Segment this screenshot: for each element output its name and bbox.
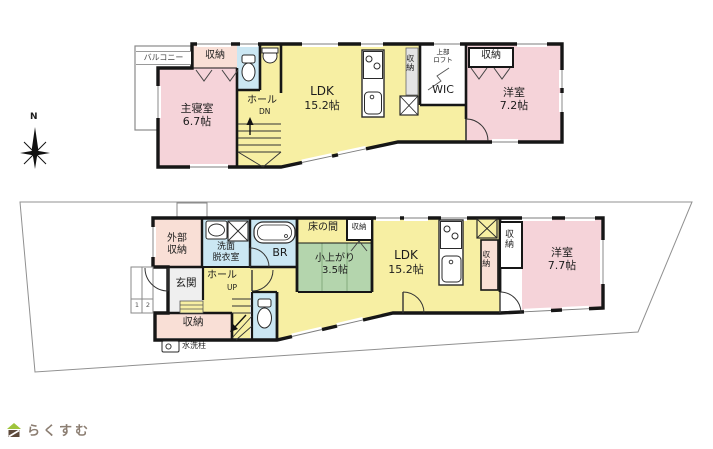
fridge-space-2f xyxy=(400,96,418,115)
western-2f-size: 7.2帖 xyxy=(482,99,546,112)
western-1f-size: 7.7帖 xyxy=(522,259,602,272)
corridor-1f xyxy=(250,267,298,292)
equipment-box xyxy=(177,203,207,217)
toilet-fixture-2f xyxy=(242,55,255,81)
label-hall-2f: ホール xyxy=(240,95,284,107)
label-ldk-1f: LDK 15.2帖 xyxy=(368,248,444,276)
label-balcony: バルコニー xyxy=(136,51,191,65)
western-2f-name: 洋室 xyxy=(482,86,546,99)
toilet-fixture-1f xyxy=(258,299,272,328)
label-kitchen-storage-2f: 収納 xyxy=(405,54,415,72)
label-storage-mid-a: 収納 xyxy=(481,250,491,268)
genkan-step xyxy=(180,301,203,313)
ext-storage-line1: 外部 xyxy=(158,233,196,245)
label-water-post: 水洗柱 xyxy=(182,341,206,351)
label-storage-mid-b: 収納 xyxy=(502,229,513,249)
label-ext-storage: 外部 収納 xyxy=(158,233,196,257)
water-post-icon xyxy=(162,341,179,352)
ext-storage-line2: 収納 xyxy=(158,245,196,257)
compass-north-icon xyxy=(20,127,50,169)
label-tokonoma: 床の間 xyxy=(298,222,348,234)
label-porch-step-1: 1 xyxy=(132,302,142,310)
label-porch-step-2: 2 xyxy=(143,302,153,310)
label-bath: BR xyxy=(265,246,295,259)
ldk-2f-name: LDK xyxy=(284,84,360,99)
label-western-1f: 洋室 7.7帖 xyxy=(522,246,602,273)
label-western-2f: 洋室 7.2帖 xyxy=(482,86,546,113)
label-washroom: 洗面 脱衣室 xyxy=(202,242,250,264)
basin-fixture-2f xyxy=(262,48,278,63)
brand-logo-text: らくすむ xyxy=(27,420,91,439)
brand-logo: らくすむ xyxy=(6,420,91,439)
master-bedroom-size: 6.7帖 xyxy=(166,115,228,128)
kitchen-2f xyxy=(362,50,384,117)
washroom-line1: 洗面 xyxy=(202,242,250,253)
label-hall-1f: ホール xyxy=(200,270,244,282)
label-stairs-dn: DN xyxy=(259,107,270,116)
fridge-space-1f xyxy=(477,219,497,238)
ldk-1f-size: 15.2帖 xyxy=(368,263,444,276)
label-storage-bottom: 収納 xyxy=(158,316,228,329)
label-storage-2f-left: 収納 xyxy=(194,50,236,62)
ldk-1f-name: LDK xyxy=(368,248,444,263)
label-ldk-2f: LDK 15.2帖 xyxy=(284,84,360,112)
label-koagari: 小上がり 3.5帖 xyxy=(304,253,366,277)
bathtub-fixture xyxy=(254,222,295,243)
western-1f-name: 洋室 xyxy=(522,246,602,259)
label-master-bedroom: 主寝室 6.7帖 xyxy=(166,102,228,129)
label-stairs-up: UP xyxy=(227,283,237,292)
koagari-size: 3.5帖 xyxy=(304,265,366,277)
ldk-2f-size: 15.2帖 xyxy=(284,99,360,112)
floorplan-canvas: N バルコニー 収納 主寝室 6.7帖 ホール DN LDK 15.2帖 収納 … xyxy=(0,0,713,449)
loft-line2: ロフト xyxy=(427,57,459,65)
house-logo-icon xyxy=(6,422,22,438)
label-genkan: 玄関 xyxy=(168,277,204,290)
koagari-name: 小上がり xyxy=(304,253,366,265)
label-storage-top: 収納 xyxy=(344,222,374,231)
master-bedroom-name: 主寝室 xyxy=(166,102,228,115)
basin-fixture-1f xyxy=(206,221,227,239)
label-storage-2f-right: 収納 xyxy=(469,50,513,62)
label-loft: 上部 ロフト xyxy=(427,49,459,65)
compass-north-label: N xyxy=(30,112,38,123)
label-wic: WIC xyxy=(419,83,467,96)
washroom-line2: 脱衣室 xyxy=(202,253,250,264)
washing-machine-space xyxy=(228,221,248,241)
